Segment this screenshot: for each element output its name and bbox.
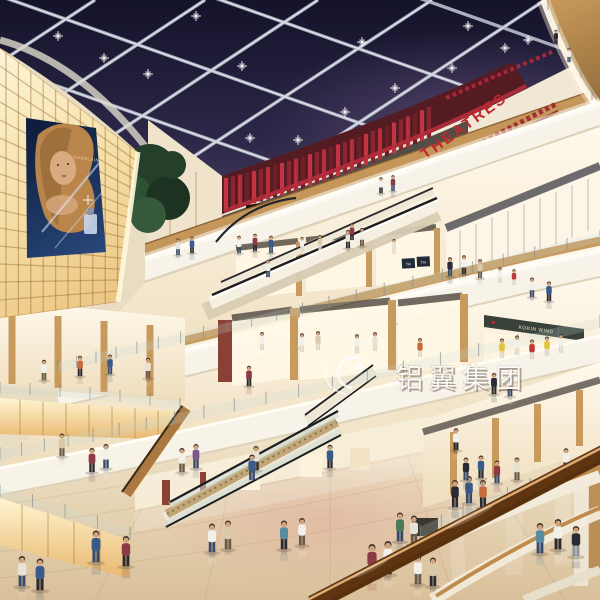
tai-tai-text-right: TAI	[421, 260, 427, 264]
mall-atrium-rendering: THEATRES TAI TAI	[0, 0, 600, 600]
scene-canvas: THEATRES TAI TAI	[0, 0, 600, 600]
watermark-text: 铝翼集团	[396, 364, 528, 394]
tai-tai-text-left: TAI	[406, 262, 412, 266]
perfume-bottle	[84, 214, 97, 234]
billboard: GUERLAIN	[26, 118, 106, 258]
